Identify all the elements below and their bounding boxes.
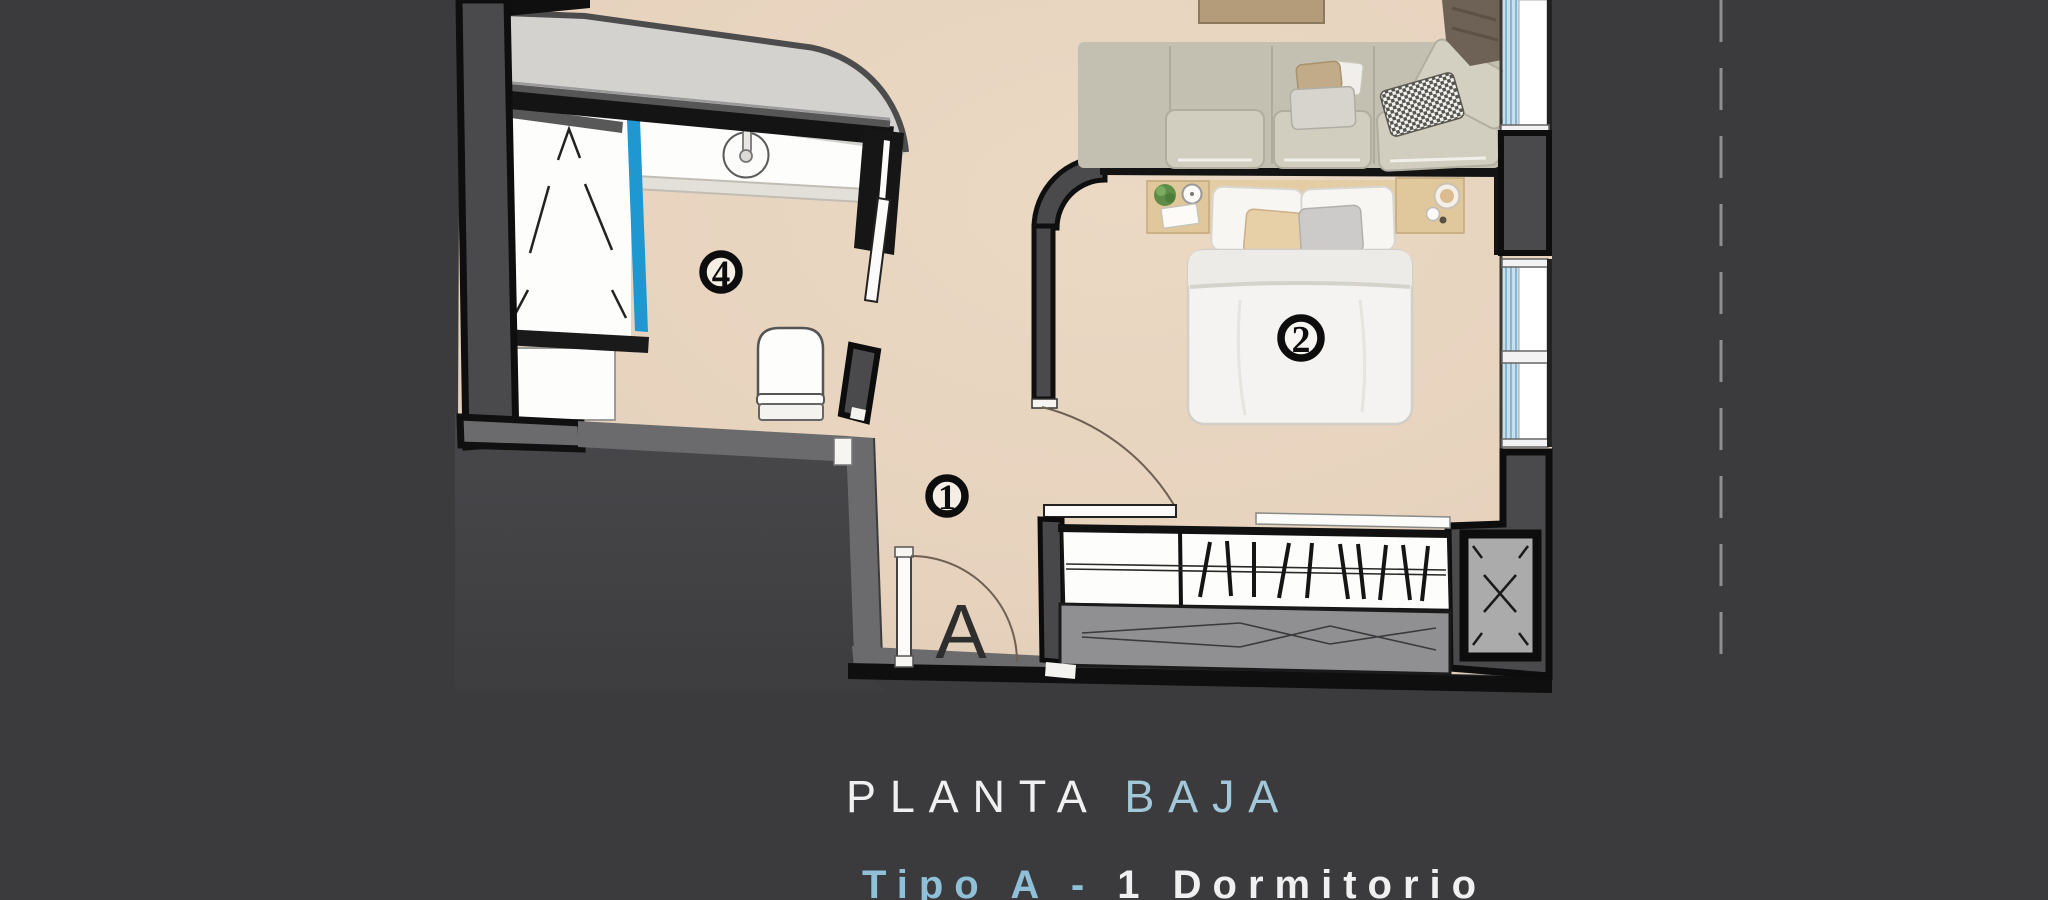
svg-text:1: 1 xyxy=(938,477,956,517)
svg-text:Tipo A - 1 Dormitorio: Tipo A - 1 Dormitorio xyxy=(862,863,1487,900)
svg-text:2: 2 xyxy=(1292,319,1311,361)
svg-text:4: 4 xyxy=(712,254,731,295)
svg-text:A: A xyxy=(935,589,987,675)
svg-text:PLANTA BAJA: PLANTA BAJA xyxy=(846,771,1292,822)
